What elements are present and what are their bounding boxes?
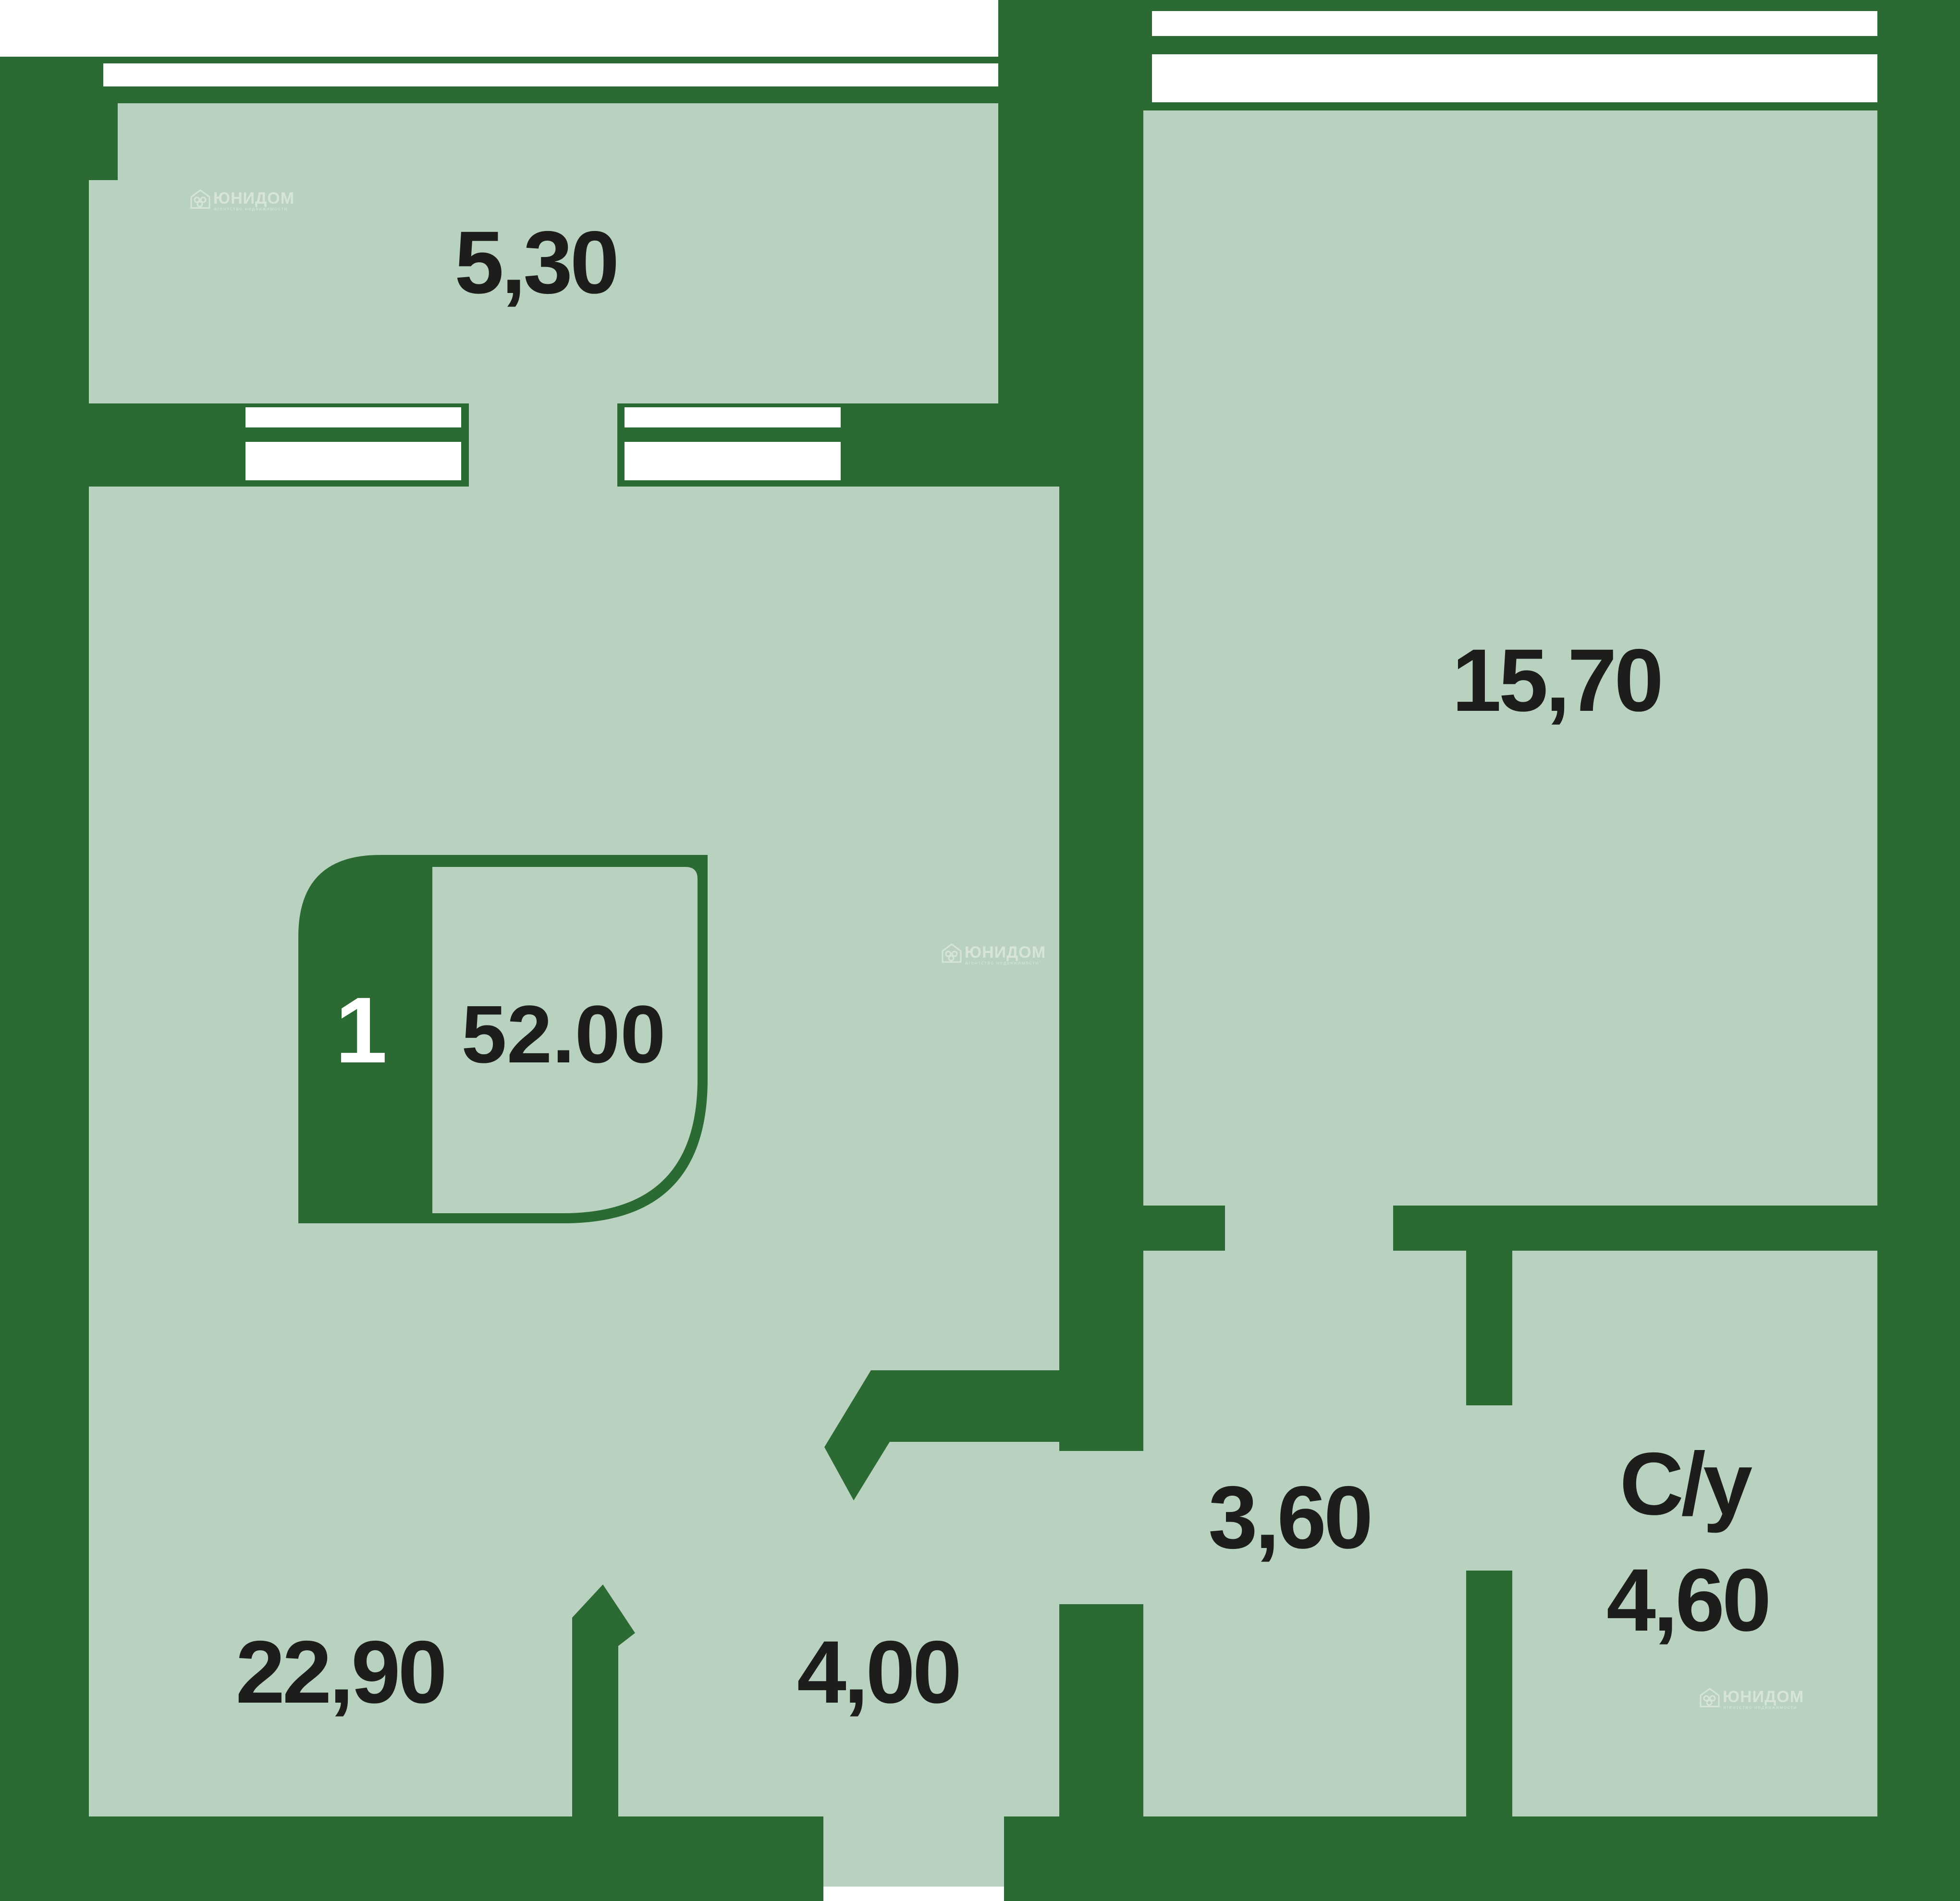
balcony-left-window-bar-2 <box>245 442 461 480</box>
label-hallway: 4,00 <box>797 1623 959 1722</box>
area-badge: 1 52.00 <box>298 855 708 1223</box>
balcony-top-window <box>103 63 998 86</box>
balcony-left-window-bar-1 <box>245 407 461 427</box>
balcony-right-window-bar-2 <box>625 442 841 480</box>
bathroom-door-opening <box>1466 1405 1512 1571</box>
watermark-brand: ЮНИДОМ <box>965 943 1046 962</box>
badge-total-area: 52.00 <box>461 989 665 1080</box>
badge-room-count: 1 <box>335 978 387 1083</box>
bedroom-window-inner-bar <box>1152 54 1877 102</box>
watermark-tagline: агентство недвижимости <box>965 960 1039 966</box>
watermark-tagline: агентство недвижимости <box>1723 1705 1797 1710</box>
bedroom-door-opening <box>1225 1206 1393 1251</box>
label-living-room: 22,90 <box>235 1623 444 1722</box>
label-balcony: 5,30 <box>454 213 617 312</box>
hall-stub-wall <box>572 1633 618 1816</box>
bathroom-floor <box>1512 1251 1877 1816</box>
label-bathroom: С/у <box>1619 1435 1752 1534</box>
floor-plan: 1 52.00 5,30 15,70 22,90 4,00 3,60 С/у 4… <box>0 0 1960 1901</box>
balcony-right-window-bar-1 <box>625 407 841 427</box>
label-corridor: 3,60 <box>1208 1468 1371 1567</box>
hall-divider-wall <box>890 1370 1063 1442</box>
watermark-brand: ЮНИДОМ <box>1723 1688 1804 1706</box>
label-bathroom-area: 4,60 <box>1606 1551 1769 1650</box>
watermark-brand: ЮНИДОМ <box>213 189 294 207</box>
label-bedroom: 15,70 <box>1452 631 1661 730</box>
watermark-tagline: агентство недвижимости <box>214 206 288 212</box>
entrance-opening-floor <box>823 1816 1004 1887</box>
entrance-threshold <box>823 1887 1004 1901</box>
hall-corridor-opening <box>1059 1451 1143 1604</box>
bedroom-window-outer-bar <box>1152 11 1877 36</box>
balcony-door-opening <box>469 403 617 487</box>
